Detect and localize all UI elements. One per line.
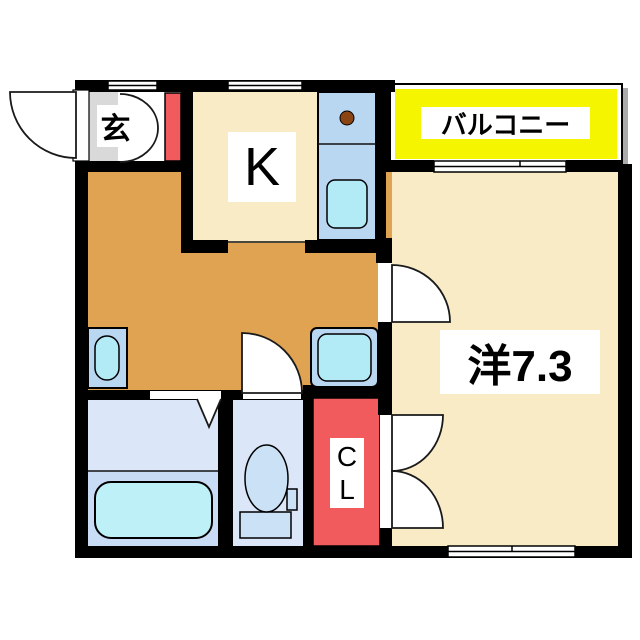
window-balcony xyxy=(434,161,566,172)
shoe-cabinet xyxy=(165,93,181,161)
entrance-door-swing xyxy=(10,92,76,158)
closet-doorway xyxy=(380,415,392,528)
toilet-bowl xyxy=(245,445,288,512)
wall-entrance-bottom xyxy=(75,161,193,172)
wall-bath-toilet xyxy=(218,395,233,546)
bathroom-doorway xyxy=(150,391,221,399)
western-room-label: 洋7.3 xyxy=(440,330,600,394)
bathroom-floor-upper xyxy=(88,400,218,471)
kitchen-sink xyxy=(327,180,367,228)
closet-label-line1: C xyxy=(337,440,357,473)
wall-kitchen-left xyxy=(181,80,193,253)
wall-balcony-right xyxy=(566,160,621,172)
entrance-label: 玄 xyxy=(97,105,134,147)
kitchen-label: K xyxy=(228,132,296,202)
floor-plan: 玄 K バルコニー 洋7.3 C L xyxy=(0,0,640,640)
washbasin-bowl xyxy=(95,336,119,380)
window-kitchen-top xyxy=(228,81,302,90)
wall-west-room-left-b xyxy=(378,322,392,415)
wall-west-room-left-c xyxy=(380,528,392,558)
wall-counter-right xyxy=(376,80,390,170)
wall-counter-right-lower xyxy=(376,170,386,238)
washbasin xyxy=(88,328,127,388)
toilet-flush-handle xyxy=(287,489,297,510)
kitchen-hall-opening-floor xyxy=(228,243,305,254)
wall-west-room-left-a xyxy=(376,238,392,263)
stove-burner xyxy=(340,111,354,125)
wall-right xyxy=(618,164,632,558)
window-south xyxy=(448,546,575,557)
closet-label-line2: L xyxy=(339,473,355,506)
wall-balcony-left xyxy=(376,160,434,172)
washing-machine-pan xyxy=(311,328,378,387)
floor-plan-drawing xyxy=(0,0,640,640)
wall-kitchen-bottom-left xyxy=(181,240,228,253)
west-room-doorway xyxy=(378,263,392,322)
kitchen-counter xyxy=(318,92,376,240)
balcony-label: バルコニー xyxy=(421,107,590,139)
wall-toilet-closet xyxy=(303,390,313,546)
closet-label: C L xyxy=(330,438,364,508)
window-entrance-top xyxy=(108,81,157,90)
bathtub xyxy=(95,482,212,538)
washing-machine xyxy=(318,334,371,381)
toilet-tank xyxy=(240,512,291,538)
